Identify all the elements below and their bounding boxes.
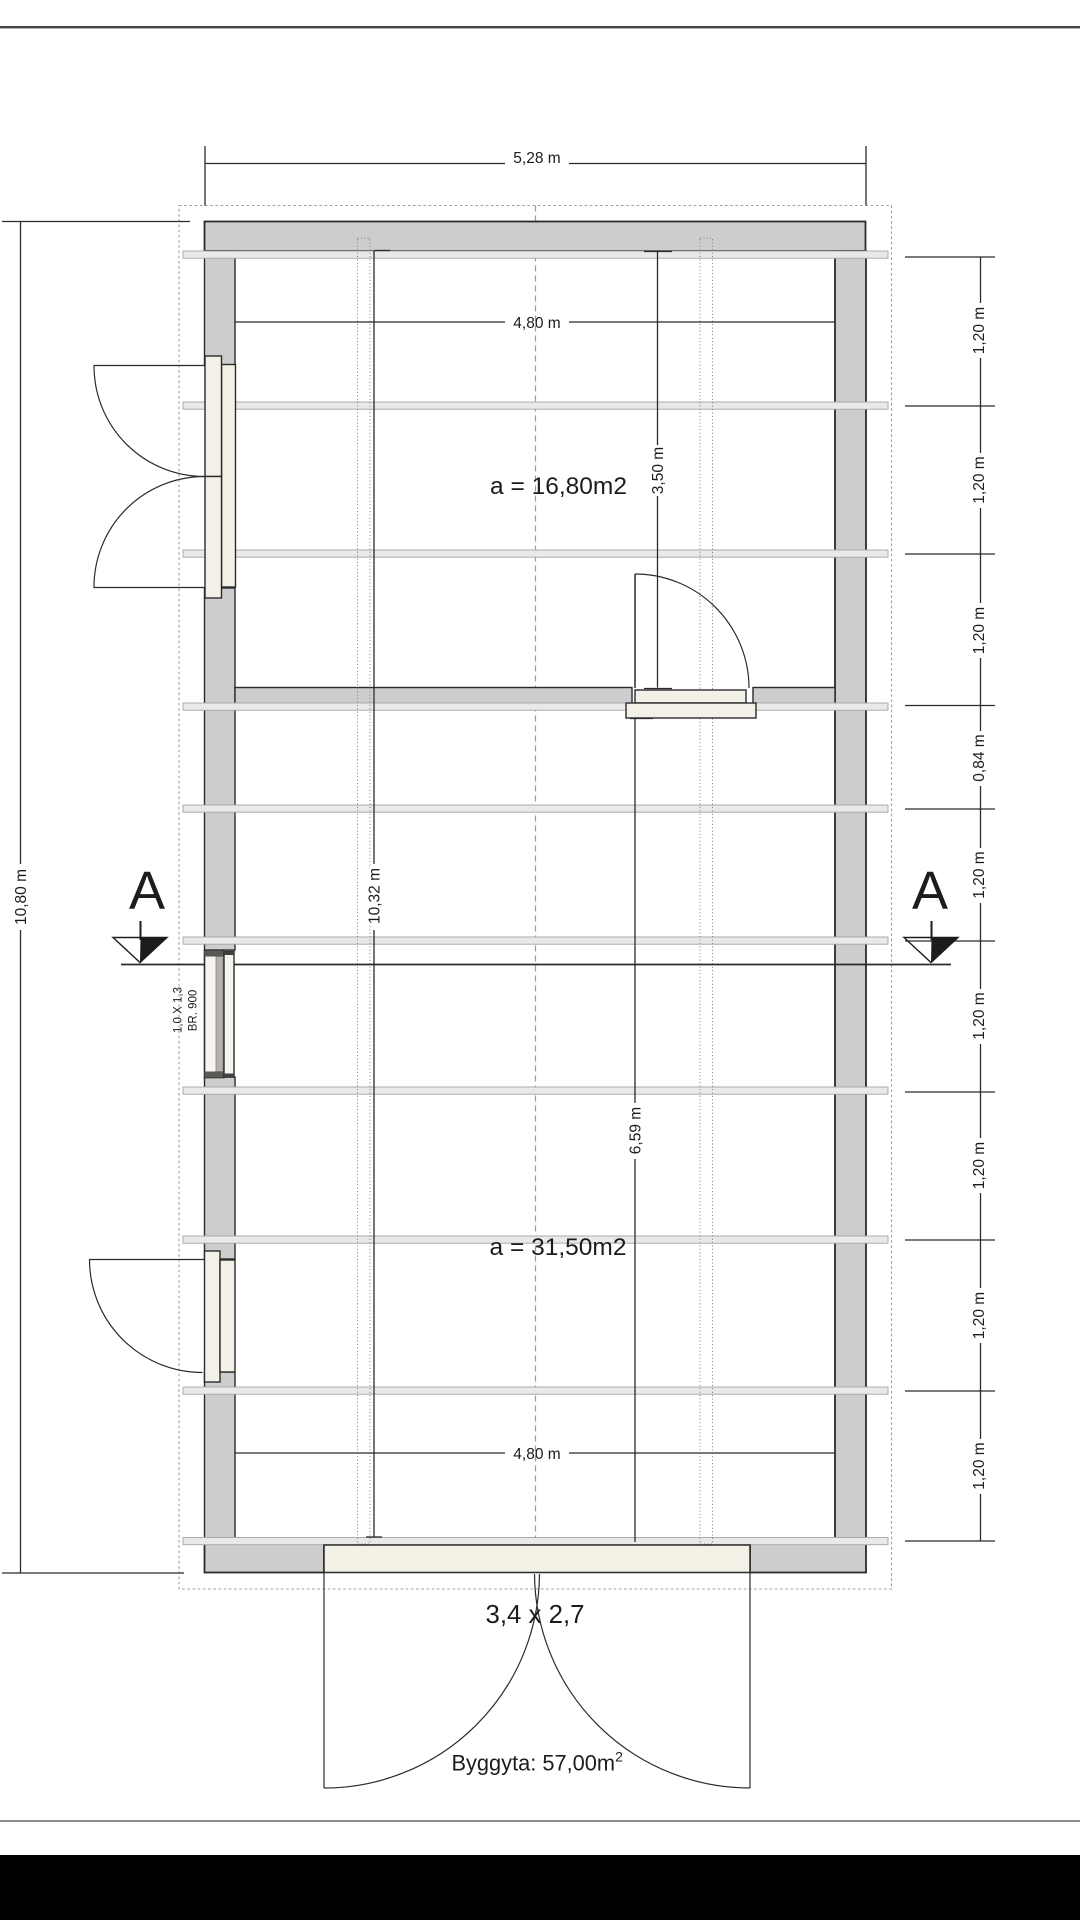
svg-text:1,20 m: 1,20 m xyxy=(971,1292,988,1339)
svg-text:0,84 m: 0,84 m xyxy=(971,734,988,781)
svg-text:4,80 m: 4,80 m xyxy=(513,1446,560,1463)
svg-text:Byggyta: 57,00m2: Byggyta: 57,00m2 xyxy=(452,1749,624,1776)
svg-text:1,0 X 1,3: 1,0 X 1,3 xyxy=(173,987,185,1033)
svg-text:a = 16,80m2: a = 16,80m2 xyxy=(490,473,627,500)
svg-text:3,4 x 2,7: 3,4 x 2,7 xyxy=(486,1601,585,1629)
svg-text:1,20 m: 1,20 m xyxy=(971,607,988,654)
svg-text:1,20 m: 1,20 m xyxy=(971,307,988,354)
svg-text:A: A xyxy=(129,861,165,921)
svg-text:10,80 m: 10,80 m xyxy=(13,869,30,925)
svg-text:10,32 m: 10,32 m xyxy=(367,868,384,924)
svg-text:a = 31,50m2: a = 31,50m2 xyxy=(490,1234,627,1261)
svg-text:BR. 900: BR. 900 xyxy=(188,990,200,1032)
svg-text:1,20 m: 1,20 m xyxy=(971,992,988,1039)
svg-text:6,59 m: 6,59 m xyxy=(628,1107,645,1154)
svg-text:1,20 m: 1,20 m xyxy=(971,456,988,503)
svg-text:3,50 m: 3,50 m xyxy=(650,447,667,494)
svg-text:1,20 m: 1,20 m xyxy=(971,851,988,898)
svg-text:1,20 m: 1,20 m xyxy=(971,1442,988,1489)
svg-text:4,80 m: 4,80 m xyxy=(513,315,560,332)
svg-text:A: A xyxy=(912,861,948,921)
svg-text:5,28 m: 5,28 m xyxy=(513,150,560,167)
svg-text:1,20 m: 1,20 m xyxy=(971,1142,988,1189)
